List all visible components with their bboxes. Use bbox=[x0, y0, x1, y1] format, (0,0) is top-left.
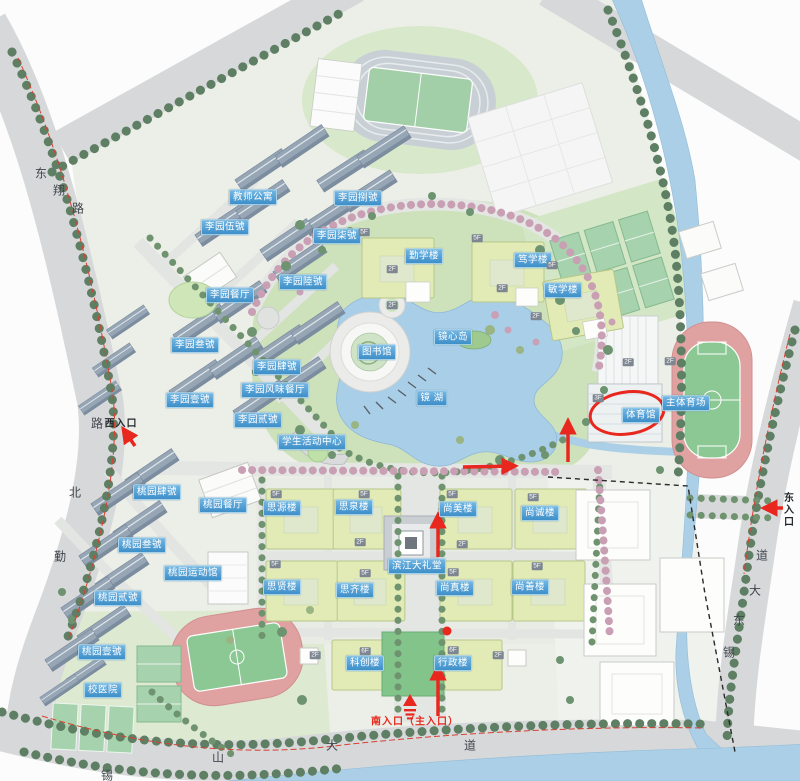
road-name-char: 锡 bbox=[101, 767, 113, 781]
road-name-char: 路 bbox=[91, 415, 103, 432]
road-name-char: 东 bbox=[733, 612, 745, 629]
facility-label: 教师公寓 bbox=[229, 189, 277, 205]
facility-label: 体育馆 bbox=[622, 407, 660, 423]
facility-label: 李园风味餐厅 bbox=[241, 382, 309, 398]
floor-count-tag: 2F bbox=[355, 538, 366, 546]
floor-count-tag: 2F bbox=[457, 540, 468, 548]
floor-count-tag: 2F bbox=[387, 301, 398, 309]
road-name-char: 道 bbox=[756, 547, 768, 564]
floor-count-tag: 5F bbox=[359, 490, 370, 498]
labels-layer: 教师公寓李园捌號李园伍號李园柒號李园陸號李园餐厅李园叁號李园肆號李园风味餐厅李园… bbox=[0, 0, 800, 781]
road-name-char: 东 bbox=[35, 165, 47, 182]
road-name-char: 北 bbox=[69, 484, 81, 501]
facility-label: 李园柒號 bbox=[313, 228, 361, 244]
floor-count-tag: 5F bbox=[447, 490, 458, 498]
facility-label: 校医院 bbox=[84, 682, 122, 698]
road-name-char: 道 bbox=[464, 737, 476, 754]
floor-count-tag: 2F bbox=[493, 651, 504, 659]
floor-count-tag: 2F bbox=[310, 651, 321, 659]
road-name-char: 路 bbox=[72, 200, 84, 217]
facility-label: 李园伍號 bbox=[201, 219, 249, 235]
facility-label: 桃园肆號 bbox=[133, 484, 181, 500]
facility-label: 镜心岛 bbox=[434, 329, 472, 345]
facility-label: 尚真楼 bbox=[436, 580, 474, 596]
floor-count-tag: 6F bbox=[448, 646, 459, 654]
facility-label: 李园叁號 bbox=[171, 337, 219, 353]
facility-label: 桃园叁號 bbox=[118, 537, 166, 553]
facility-label: 行政楼 bbox=[434, 655, 472, 671]
floor-count-tag: 5F bbox=[528, 493, 539, 501]
road-name-char: 锡 bbox=[723, 644, 735, 661]
road-name-char: 大 bbox=[326, 737, 338, 754]
facility-label: 尚诚楼 bbox=[521, 505, 559, 521]
facility-label: 滨江大礼堂 bbox=[388, 558, 446, 574]
floor-count-tag: 2F bbox=[623, 358, 634, 366]
floor-count-tag: 5F bbox=[448, 568, 459, 576]
floor-count-tag: 2F bbox=[497, 284, 508, 292]
facility-label: 李园捌號 bbox=[334, 190, 382, 206]
floor-count-tag: 5F bbox=[532, 562, 543, 570]
floor-count-tag: 3F bbox=[593, 394, 604, 402]
facility-label: 桃园贰號 bbox=[94, 590, 142, 606]
facility-label: 李园贰號 bbox=[234, 412, 282, 428]
facility-label: 思源楼 bbox=[263, 500, 301, 516]
road-name-char: 大 bbox=[749, 582, 761, 599]
facility-label: 勤学楼 bbox=[405, 248, 443, 264]
floor-count-tag: 5F bbox=[547, 261, 558, 269]
facility-label: 桃园餐厅 bbox=[199, 497, 247, 513]
facility-label: 科创楼 bbox=[346, 655, 384, 671]
floor-count-tag: 5F bbox=[271, 490, 282, 498]
facility-label: 尚善楼 bbox=[511, 579, 549, 595]
facility-label: 尚美楼 bbox=[439, 501, 477, 517]
facility-label: 主体育场 bbox=[662, 395, 710, 411]
facility-label: 镜 湖 bbox=[416, 390, 447, 406]
entrance-label: 西入口 bbox=[105, 415, 138, 430]
entrance-label: 东入口 bbox=[780, 492, 795, 528]
facility-label: 桃园壹號 bbox=[78, 644, 126, 660]
floor-count-tag: 5F bbox=[359, 228, 370, 236]
facility-label: 学生活动中心 bbox=[278, 434, 346, 450]
facility-label: 李园壹號 bbox=[166, 392, 214, 408]
road-name-char: 翔 bbox=[53, 182, 65, 199]
facility-label: 图书馆 bbox=[358, 344, 396, 360]
floor-count-tag: 2F bbox=[665, 357, 676, 365]
facility-label: 思齐楼 bbox=[336, 582, 374, 598]
facility-label: 李园肆號 bbox=[253, 359, 301, 375]
road-name-char: 山 bbox=[212, 749, 224, 766]
entrance-label: 南入口（主入口） bbox=[371, 713, 459, 728]
campus-master-plan: 教师公寓李园捌號李园伍號李园柒號李园陸號李园餐厅李园叁號李园肆號李园风味餐厅李园… bbox=[0, 0, 800, 781]
floor-count-tag: 5F bbox=[270, 560, 281, 568]
facility-label: 桃园运动馆 bbox=[164, 565, 222, 581]
facility-label: 李园陸號 bbox=[279, 274, 327, 290]
floor-count-tag: 6F bbox=[360, 647, 371, 655]
floor-count-tag: 2F bbox=[387, 265, 398, 273]
facility-label: 思贤楼 bbox=[263, 579, 301, 595]
facility-label: 李园餐厅 bbox=[206, 287, 254, 303]
facility-label: 思泉楼 bbox=[335, 499, 373, 515]
floor-count-tag: 5F bbox=[360, 569, 371, 577]
facility-label: 敏学楼 bbox=[544, 282, 582, 298]
floor-count-tag: 5F bbox=[472, 234, 483, 242]
road-name-char: 勤 bbox=[54, 548, 66, 565]
floor-count-tag: 2F bbox=[531, 312, 542, 320]
